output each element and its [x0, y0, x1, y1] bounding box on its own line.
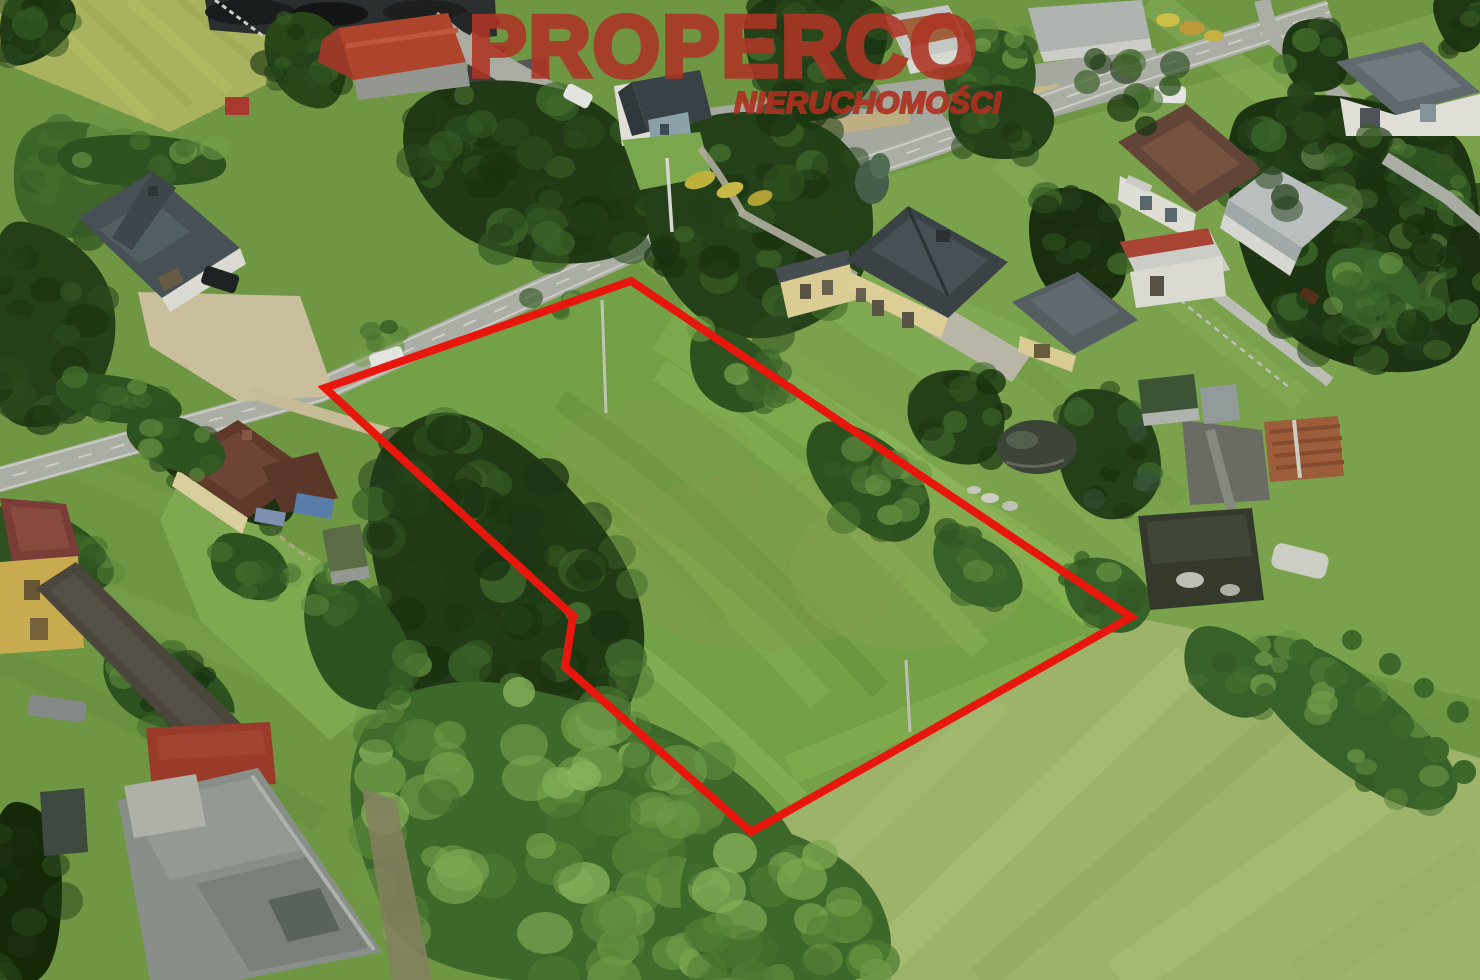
svg-text:NIERUCHOMOŚCI: NIERUCHOMOŚCI — [734, 85, 1002, 120]
svg-text:PROPERCO: PROPERCO — [469, 0, 979, 95]
